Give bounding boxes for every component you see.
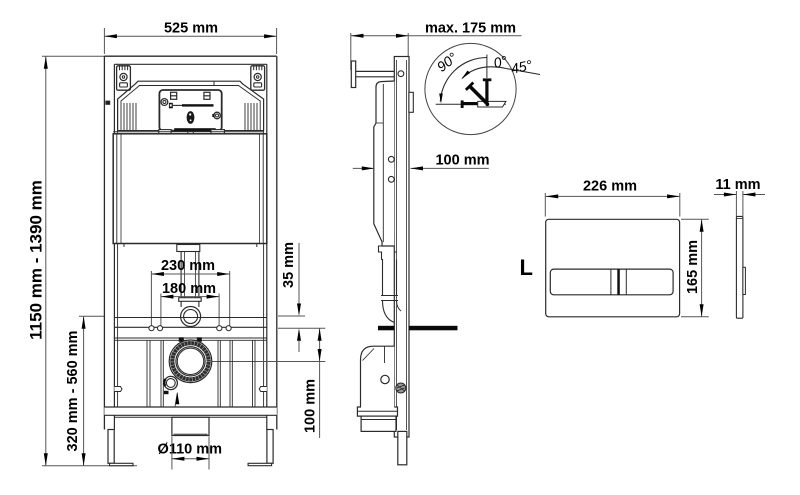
svg-text:165 mm: 165 mm: [685, 240, 701, 294]
svg-text:L: L: [520, 255, 533, 280]
svg-text:11 mm: 11 mm: [715, 177, 760, 193]
svg-text:max. 175 mm: max. 175 mm: [425, 21, 516, 37]
svg-text:226 mm: 226 mm: [583, 179, 637, 195]
svg-text:Ø110 mm: Ø110 mm: [158, 442, 223, 458]
svg-text:180 mm: 180 mm: [162, 281, 216, 297]
svg-text:230 mm: 230 mm: [161, 258, 215, 274]
svg-text:100 mm: 100 mm: [435, 153, 489, 169]
svg-text:525 mm: 525 mm: [164, 21, 218, 37]
svg-text:35 mm: 35 mm: [281, 242, 297, 288]
svg-text:1150 mm - 1390 mm: 1150 mm - 1390 mm: [27, 180, 46, 340]
svg-text:320 mm - 560 mm: 320 mm - 560 mm: [65, 331, 81, 452]
svg-text:100 mm: 100 mm: [303, 379, 319, 433]
